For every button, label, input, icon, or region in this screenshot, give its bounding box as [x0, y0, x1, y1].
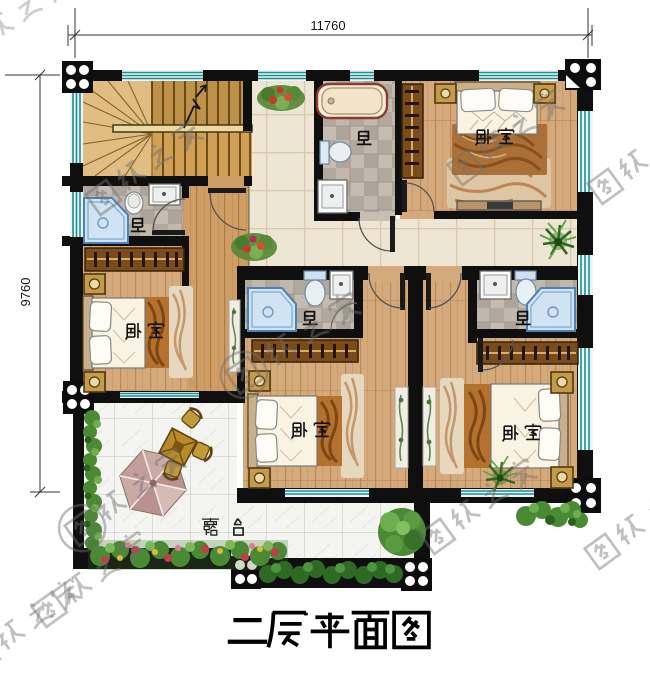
svg-text:9760: 9760 — [18, 278, 33, 307]
svg-text:11760: 11760 — [310, 18, 345, 33]
